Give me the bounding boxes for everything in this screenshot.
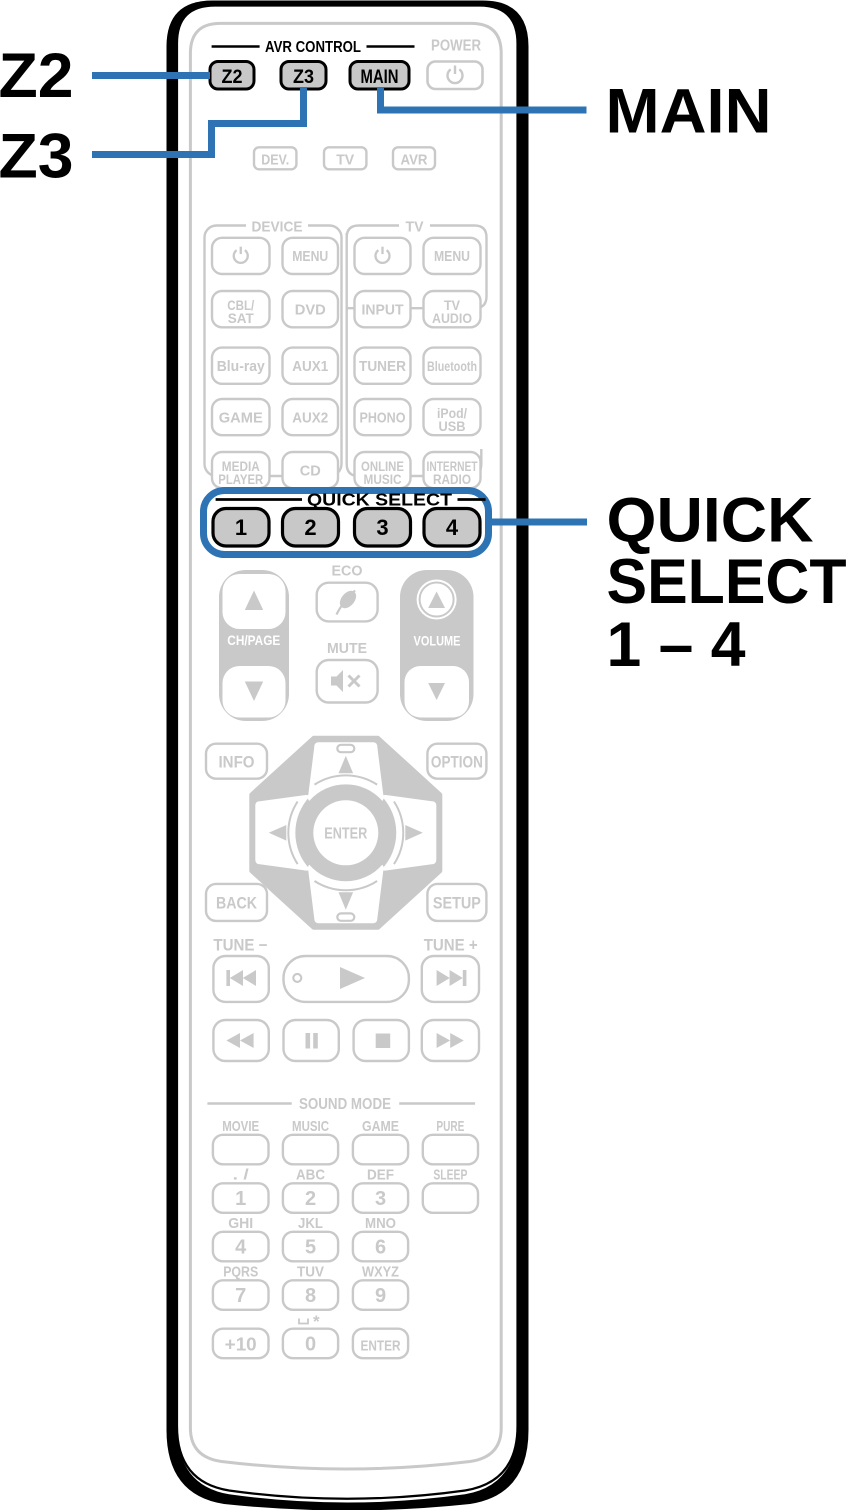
svg-text:AUDIO: AUDIO <box>432 311 472 326</box>
svg-text:PLAYER: PLAYER <box>218 472 263 487</box>
svg-text:Z2: Z2 <box>222 67 243 88</box>
svg-text:MAIN: MAIN <box>361 67 399 88</box>
svg-text:0: 0 <box>305 1333 316 1355</box>
svg-text:PHONO: PHONO <box>360 409 406 426</box>
svg-text:4: 4 <box>235 1237 247 1259</box>
svg-text:AVR: AVR <box>401 152 428 169</box>
svg-text:TUNE +: TUNE + <box>424 936 478 954</box>
svg-text:DEV.: DEV. <box>261 152 289 169</box>
svg-text:. /: . / <box>233 1167 250 1184</box>
svg-text:INPUT: INPUT <box>362 301 404 318</box>
svg-text:Z2: Z2 <box>0 41 74 111</box>
svg-text:GAME: GAME <box>219 409 263 426</box>
svg-text:7: 7 <box>235 1285 246 1307</box>
svg-text:+10: +10 <box>225 1334 257 1354</box>
svg-text:9: 9 <box>375 1285 386 1307</box>
svg-text:1: 1 <box>235 515 247 540</box>
svg-text:MNO: MNO <box>365 1215 396 1232</box>
svg-text:TV: TV <box>406 218 424 235</box>
svg-text:JKL: JKL <box>298 1215 323 1232</box>
svg-text:DVD: DVD <box>295 301 326 318</box>
svg-text:ECO: ECO <box>332 564 363 580</box>
svg-text:MUSIC: MUSIC <box>292 1118 329 1135</box>
svg-text:3: 3 <box>376 515 388 540</box>
svg-text:ENTER: ENTER <box>324 825 367 842</box>
svg-text:GHI: GHI <box>228 1215 253 1232</box>
svg-text:MAIN: MAIN <box>606 77 772 147</box>
svg-text:Z3: Z3 <box>0 122 74 192</box>
svg-text:3: 3 <box>375 1188 386 1210</box>
svg-text:2: 2 <box>305 1188 316 1210</box>
svg-text:1 – 4: 1 – 4 <box>607 610 746 680</box>
svg-text:5: 5 <box>305 1237 316 1259</box>
svg-text:INFO: INFO <box>219 753 255 772</box>
svg-text:8: 8 <box>305 1285 316 1307</box>
svg-text:TV: TV <box>336 152 354 169</box>
svg-text:QUICK: QUICK <box>607 486 814 556</box>
svg-text:AVR CONTROL: AVR CONTROL <box>265 39 361 56</box>
svg-text:2: 2 <box>304 515 316 540</box>
svg-text:OPTION: OPTION <box>431 753 483 772</box>
svg-text:DEVICE: DEVICE <box>252 218 303 235</box>
svg-text:SAT: SAT <box>228 311 255 326</box>
svg-text:POWER: POWER <box>431 37 481 54</box>
svg-text:QUICK SELECT: QUICK SELECT <box>307 489 452 509</box>
svg-text:SELECT: SELECT <box>607 547 847 617</box>
svg-text:ENTER: ENTER <box>361 1337 401 1354</box>
svg-text:SETUP: SETUP <box>433 894 481 913</box>
svg-text:AUX1: AUX1 <box>292 358 328 375</box>
svg-text:AUX2: AUX2 <box>292 409 328 426</box>
svg-text:Blu-ray: Blu-ray <box>217 358 266 375</box>
svg-text:GAME: GAME <box>362 1118 399 1135</box>
svg-text:CH/PAGE: CH/PAGE <box>227 632 280 648</box>
svg-text:MUTE: MUTE <box>327 641 367 657</box>
svg-text:SLEEP: SLEEP <box>433 1167 467 1184</box>
svg-text:MOVIE: MOVIE <box>222 1118 259 1135</box>
svg-text:4: 4 <box>446 515 459 540</box>
svg-text:WXYZ: WXYZ <box>362 1264 399 1281</box>
svg-text:ABC: ABC <box>296 1167 325 1184</box>
svg-text:Z3: Z3 <box>293 67 314 88</box>
svg-text:PQRS: PQRS <box>223 1264 258 1281</box>
svg-text:1: 1 <box>235 1188 246 1210</box>
svg-text:PURE: PURE <box>436 1118 464 1135</box>
svg-text:BACK: BACK <box>216 894 258 913</box>
svg-text:TUV: TUV <box>297 1264 324 1281</box>
svg-text:CD: CD <box>300 462 321 479</box>
svg-text:TUNER: TUNER <box>359 358 406 375</box>
svg-text:VOLUME: VOLUME <box>414 633 461 648</box>
svg-text:MENU: MENU <box>292 248 328 265</box>
svg-text:MUSIC: MUSIC <box>364 472 402 487</box>
svg-text:TUNE −: TUNE − <box>213 936 267 954</box>
svg-text:6: 6 <box>375 1237 386 1259</box>
svg-text:USB: USB <box>439 419 466 434</box>
svg-text:SOUND MODE: SOUND MODE <box>299 1096 391 1113</box>
svg-text:MENU: MENU <box>434 248 470 265</box>
svg-text:DEF: DEF <box>367 1167 394 1184</box>
svg-text:Bluetooth: Bluetooth <box>427 358 477 374</box>
svg-text:RADIO: RADIO <box>433 472 471 487</box>
